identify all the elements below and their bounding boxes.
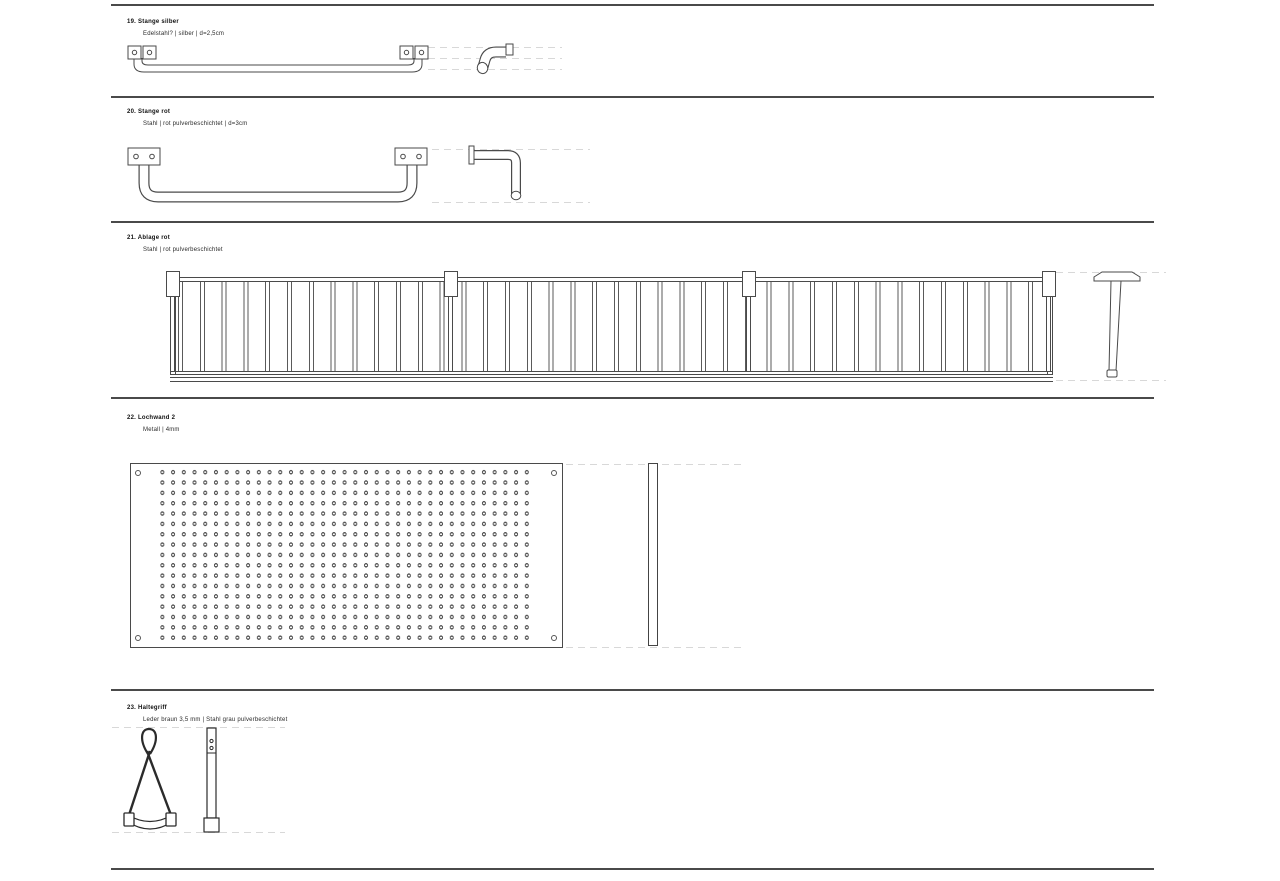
panel-corner-hole [551, 635, 557, 641]
section-divider [111, 689, 1154, 691]
rod-silver-front-view-drawing [126, 42, 430, 74]
section-23-title: 23. Haltegriff [127, 705, 167, 711]
rod-silver-side-view-drawing [472, 40, 518, 76]
section-divider [111, 4, 1154, 6]
panel-corner-hole [551, 470, 557, 476]
panel-corner-hole [135, 470, 141, 476]
rack-slats [178, 282, 1044, 371]
rack-bracket-bar [448, 297, 453, 371]
rack-hook-bracket [742, 271, 756, 297]
handle-front-view-drawing [120, 725, 190, 837]
technical-drawing-sheet: 19. Stange silber Edelstahl? | silber | … [0, 0, 1280, 881]
panel-hole-grid [157, 467, 533, 643]
section-20-spec: Stahl | rot pulverbeschichtet | d=3cm [143, 121, 247, 127]
section-20-title: 20. Stange rot [127, 109, 170, 115]
section-21-spec: Stahl | rot pulverbeschichtet [143, 247, 223, 253]
section-19-title: 19. Stange silber [127, 19, 179, 25]
rack-bottom-edge [170, 377, 1053, 382]
section-divider [111, 397, 1154, 399]
rack-bracket-bar [746, 297, 751, 371]
rack-bottom-rail [170, 371, 1053, 375]
rack-hook-bracket [1042, 271, 1056, 297]
rack-bracket-bar [1046, 297, 1051, 371]
rack-top-rail [170, 277, 1053, 282]
section-19-spec: Edelstahl? | silber | d=2,5cm [143, 31, 224, 37]
section-23-spec: Leder braun 3,5 mm | Stahl grau pulverbe… [143, 717, 287, 723]
panel-corner-hole [135, 635, 141, 641]
section-22-title: 22. Lochwand 2 [127, 415, 175, 421]
section-21-title: 21. Ablage rot [127, 235, 170, 241]
rack-hook-bracket [166, 271, 180, 297]
rack-hook-bracket [444, 271, 458, 297]
rod-red-front-view-drawing [126, 144, 431, 206]
perforated-panel-side-view-drawing [648, 463, 658, 646]
section-22-spec: Metall | 4mm [143, 427, 180, 433]
handle-side-view-drawing [200, 725, 230, 837]
section-divider [111, 868, 1154, 870]
rack-bracket-bar [170, 297, 175, 371]
section-divider [111, 96, 1154, 98]
guide-dash-line [566, 647, 742, 648]
rod-red-side-view-drawing [465, 143, 535, 206]
section-divider [111, 221, 1154, 223]
rack-side-view-t-bracket-drawing [1092, 268, 1144, 382]
